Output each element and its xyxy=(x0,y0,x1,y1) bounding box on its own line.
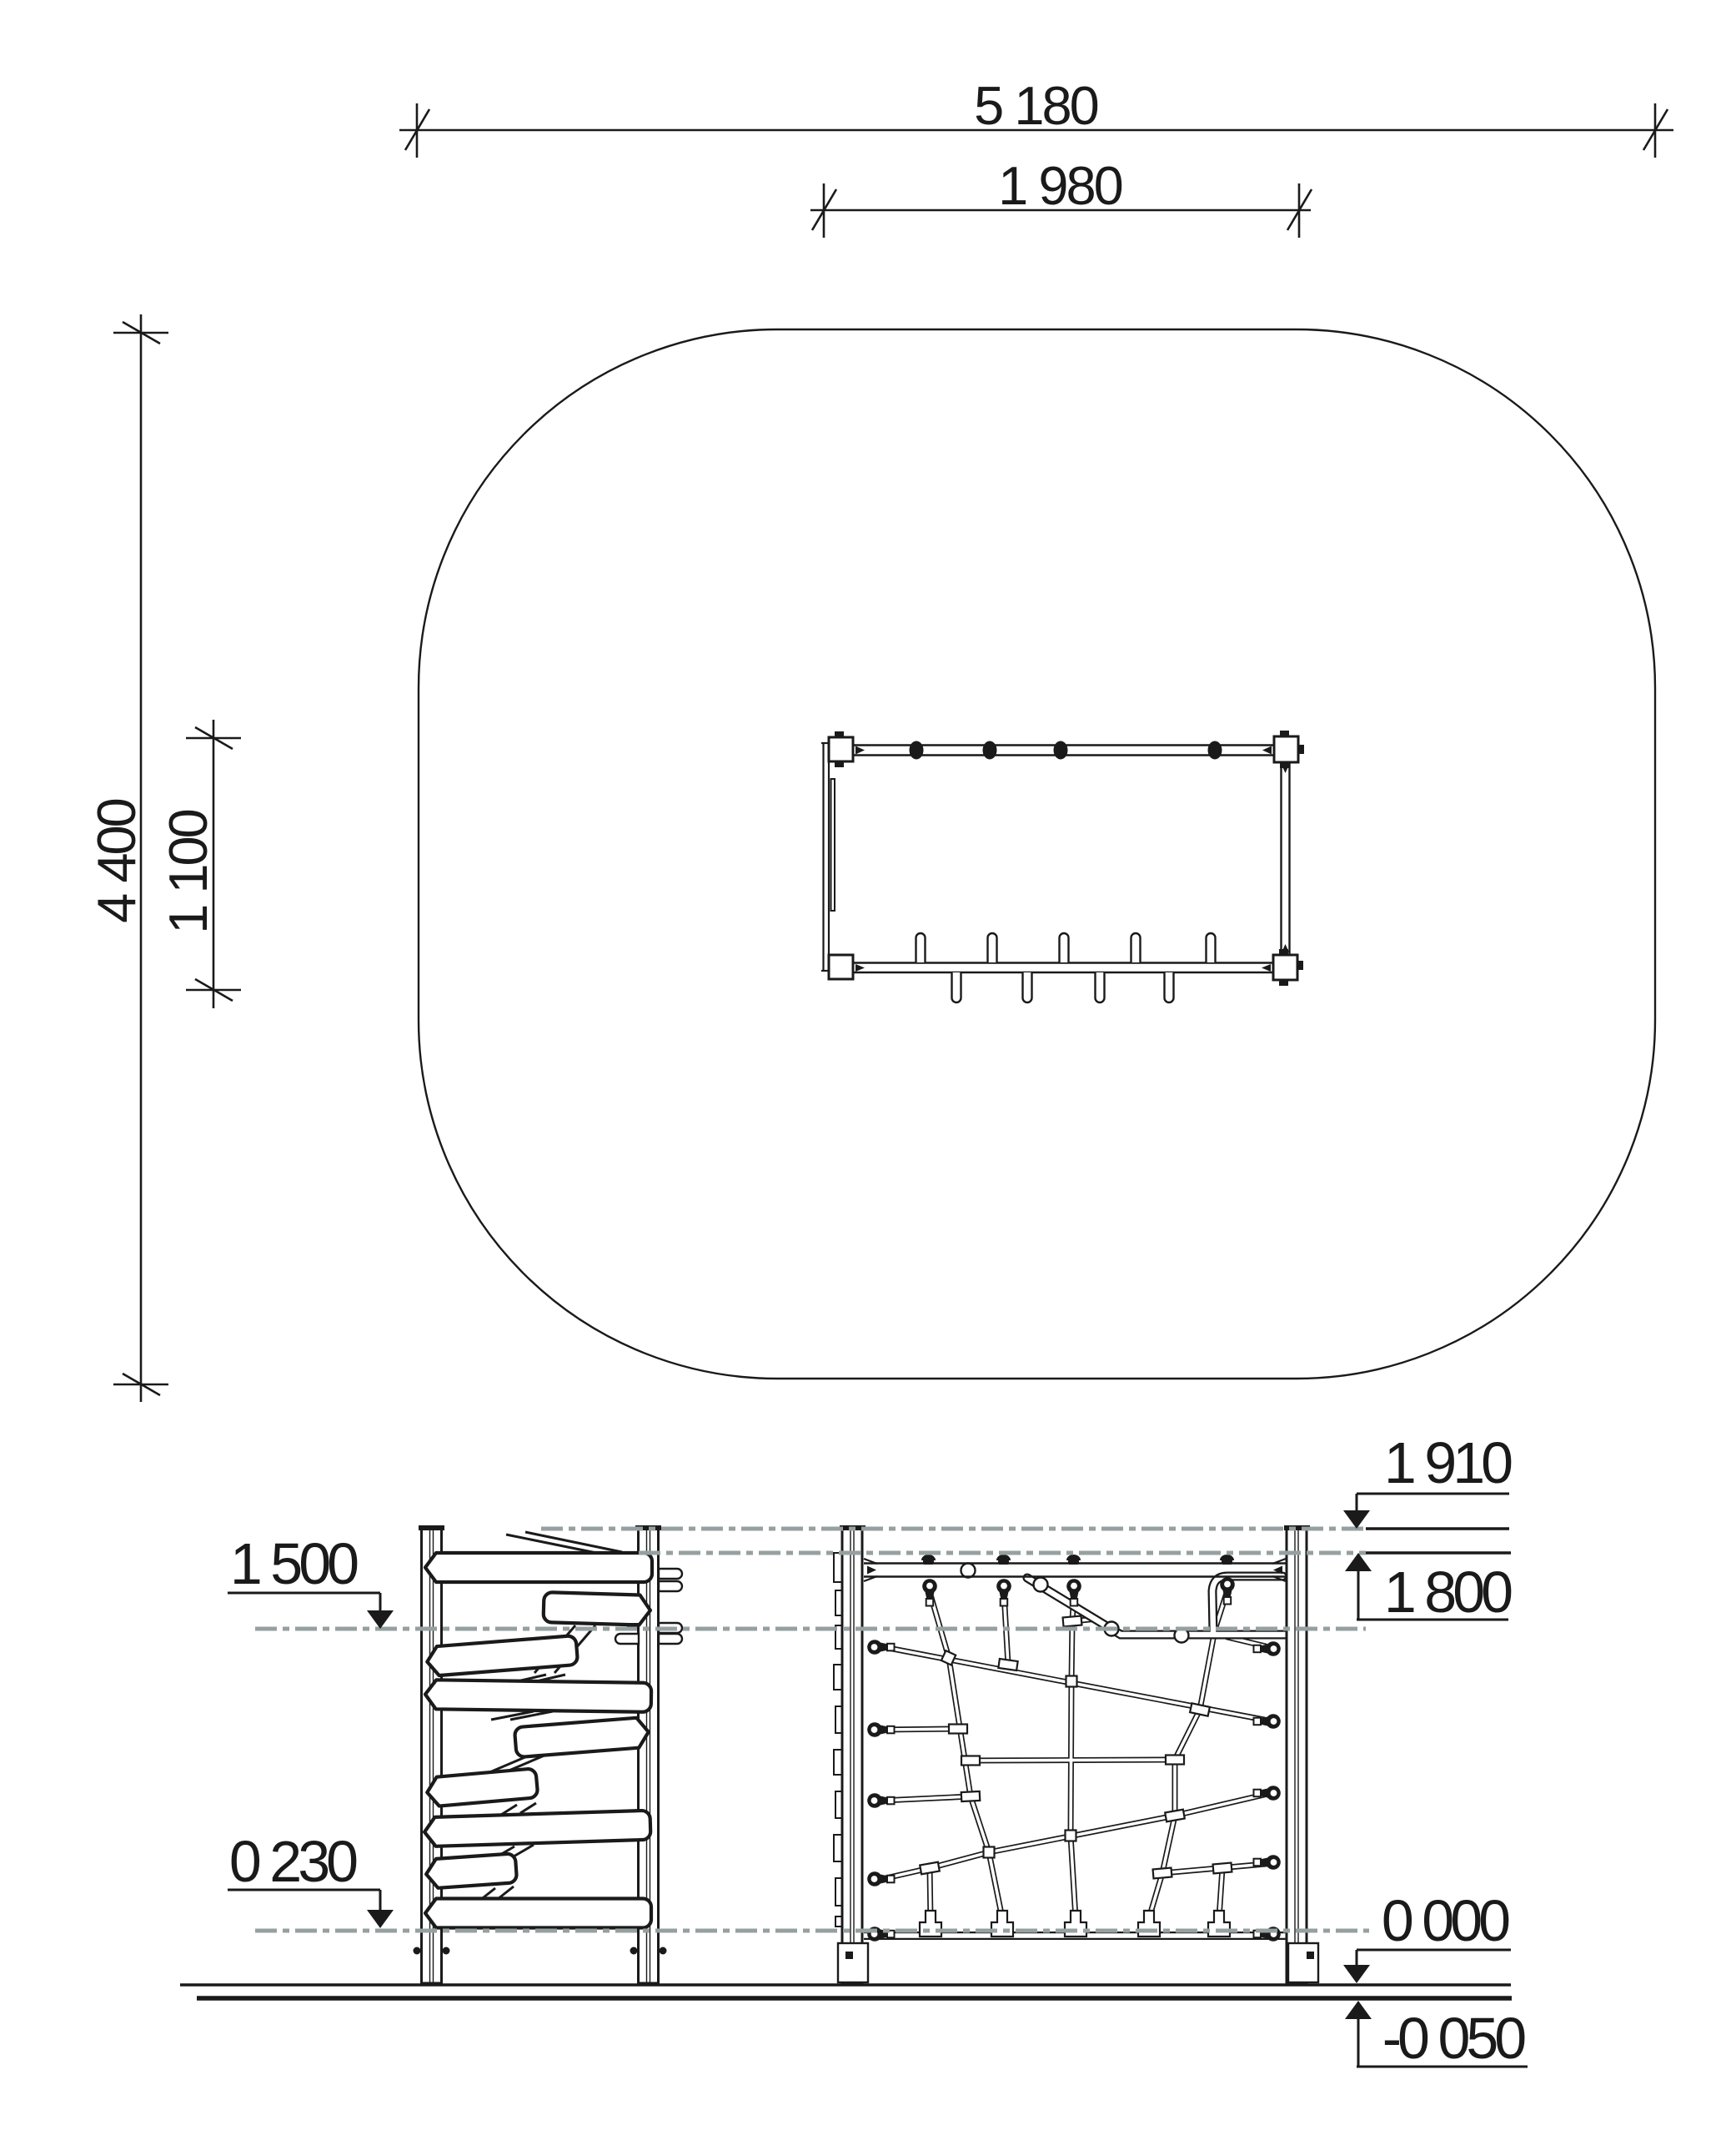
svg-text:4 400: 4 400 xyxy=(86,799,147,923)
svg-text:1 100: 1 100 xyxy=(158,810,218,934)
svg-text:1 500: 1 500 xyxy=(230,1531,358,1596)
svg-text:1 980: 1 980 xyxy=(998,155,1122,216)
svg-text:0 000: 0 000 xyxy=(1382,1888,1509,1953)
svg-text:1 800: 1 800 xyxy=(1384,1560,1512,1625)
svg-text:1 910: 1 910 xyxy=(1384,1430,1512,1495)
svg-text:-0 050: -0 050 xyxy=(1382,2006,1526,2071)
svg-text:5 180: 5 180 xyxy=(974,75,1098,136)
svg-text:0 230: 0 230 xyxy=(229,1829,357,1894)
